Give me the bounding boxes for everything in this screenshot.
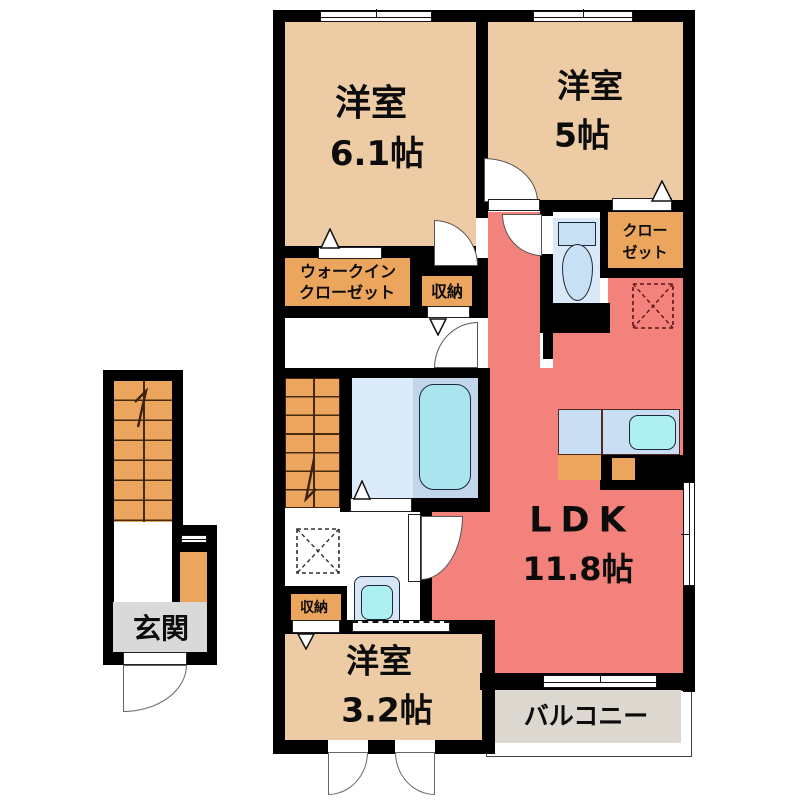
bedroom3-top-closet-strip xyxy=(352,621,450,632)
ldk-floor-bottom xyxy=(495,632,683,673)
shoe-cabinet xyxy=(180,552,207,602)
bedroom3-size: 3.2帖 xyxy=(341,694,432,727)
wic-door-triangle-icon xyxy=(319,228,341,249)
entrance-landing xyxy=(114,522,172,604)
entry-staircase xyxy=(114,381,172,522)
bathroom-door-triangle-icon xyxy=(352,480,372,500)
wall-bedroom3-bottom-c xyxy=(435,740,495,754)
wall-right-upper xyxy=(683,10,695,482)
wall-bedroom3-bottom-a xyxy=(273,740,328,754)
kitchen-cabinet-right xyxy=(612,458,635,480)
bedroom3-door-swing-left xyxy=(328,752,368,795)
wic-label-line1: ウォークイン xyxy=(300,264,396,280)
balcony-sliding-door xyxy=(543,675,657,688)
closet-label-line1: クロー xyxy=(622,224,667,239)
stair-direction-arrow-icon xyxy=(132,385,154,431)
stair-direction-arrow-icon xyxy=(298,455,320,505)
kitchen-cabinet-left xyxy=(558,455,601,480)
bedroom1-door-opening xyxy=(476,218,488,258)
wall-bedroom3-bottom-b xyxy=(368,740,395,754)
bedroom3-door-swing-right xyxy=(395,752,435,795)
washing-machine-space-icon xyxy=(295,527,341,575)
wall-wic-storage-divider xyxy=(410,258,422,306)
wall-bath-right xyxy=(478,368,490,510)
window-sash xyxy=(182,539,206,540)
bedroom3-name: 洋室 xyxy=(346,645,412,678)
bedroom2-size: 5帖 xyxy=(554,119,610,152)
storage-lower-label: 収納 xyxy=(300,601,328,615)
bedroom2-door-leaf xyxy=(488,199,540,211)
ldk-side-window xyxy=(683,482,695,586)
bathtub xyxy=(419,384,471,490)
refrigerator-space-icon xyxy=(631,282,675,330)
storage-upper-triangle-icon xyxy=(428,318,448,336)
front-door-leaf xyxy=(123,652,187,665)
bedroom1-name: 洋室 xyxy=(335,86,407,122)
entrance-label: 玄関 xyxy=(133,615,189,643)
ldk-size: 11.8帖 xyxy=(523,553,634,585)
balcony-label: バルコニー xyxy=(524,704,649,729)
ldk-name: LDK xyxy=(529,504,634,539)
wall-kitchen-stub xyxy=(543,333,553,359)
storage-upper-label: 収納 xyxy=(431,284,463,300)
ldk-floor-under-toilet xyxy=(553,333,683,373)
bathroom-door xyxy=(350,498,412,512)
wall-left xyxy=(273,10,285,754)
wall-bedroom3-right xyxy=(482,632,495,752)
storage-lower-triangle-icon xyxy=(296,633,316,650)
floor-plan: 玄関 バルコニー xyxy=(0,0,800,800)
wall-closet-bottom xyxy=(600,268,683,278)
wall-toilet-bottom xyxy=(540,303,610,333)
bedroom2-window xyxy=(533,11,633,22)
window-tick xyxy=(681,534,690,535)
entrance-side-window xyxy=(181,535,207,543)
bedroom1-size: 6.1帖 xyxy=(330,137,424,171)
bedroom2-name: 洋室 xyxy=(557,70,623,103)
closet-door-triangle-icon xyxy=(650,180,674,202)
window-tick xyxy=(376,9,377,18)
storage-upper-door xyxy=(427,306,470,318)
washbasin-bowl xyxy=(361,585,393,620)
toilet-tank xyxy=(558,222,596,246)
kitchen-sink xyxy=(629,415,676,450)
internal-staircase xyxy=(285,378,340,508)
wall-stair-bath-divider xyxy=(340,376,352,510)
storage-lower-door xyxy=(292,620,340,633)
closet-label-line2: ゼット xyxy=(622,246,667,261)
wall-hallway-bottom xyxy=(285,368,480,378)
washroom-door-leaf xyxy=(408,514,421,582)
window-tick xyxy=(600,673,601,682)
kitchen-counter-divider xyxy=(601,409,603,455)
window-tick xyxy=(583,9,584,18)
bedroom1-window xyxy=(320,11,432,22)
wic-label-line2: クローゼット xyxy=(299,285,395,301)
front-door-swing xyxy=(123,665,187,712)
